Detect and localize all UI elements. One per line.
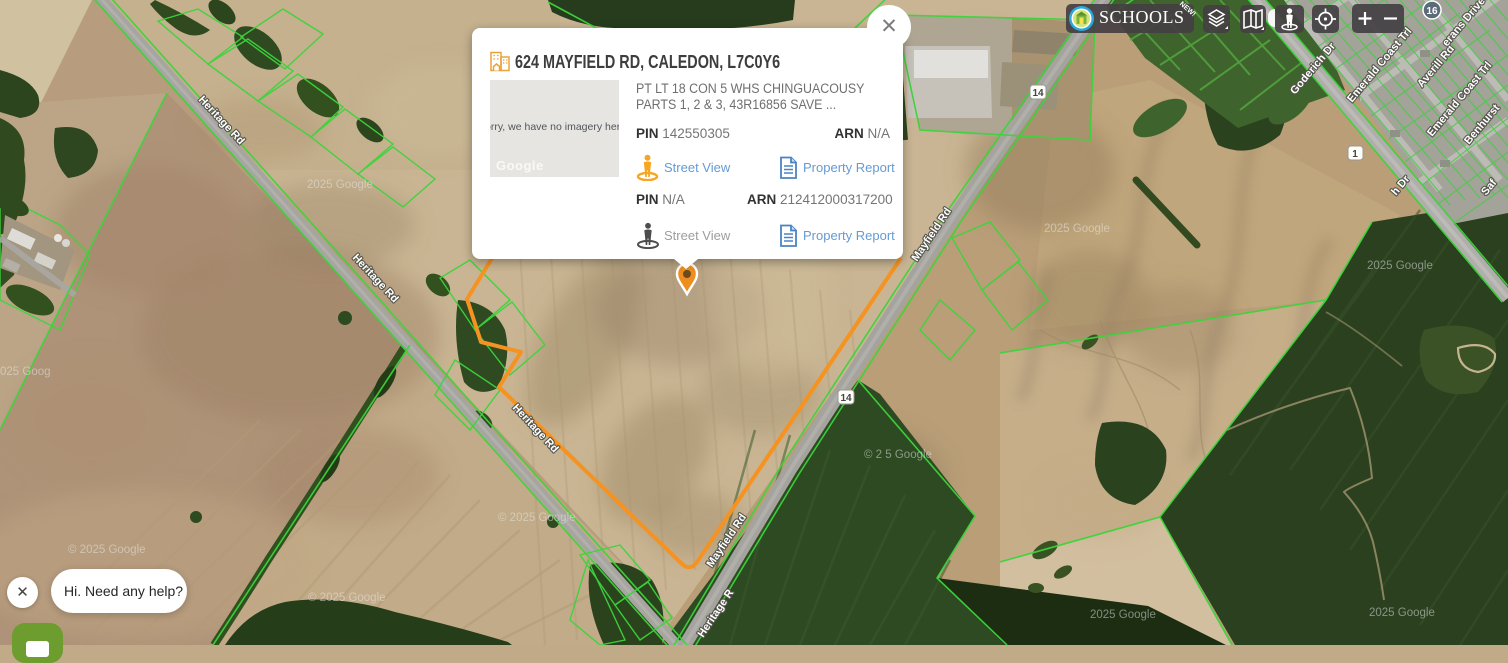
svg-text:2025 Google: 2025 Google: [307, 179, 373, 191]
svg-text:© 2025 Google: © 2025 Google: [498, 512, 576, 524]
svg-text:© 2025 Google: © 2025 Google: [68, 544, 146, 556]
svg-text:14: 14: [840, 393, 852, 404]
svg-text:2025 Google: 2025 Google: [1367, 260, 1433, 272]
svg-text:1: 1: [1352, 149, 1358, 160]
svg-text:16: 16: [1426, 6, 1438, 17]
svg-text:2025 Google: 2025 Google: [1090, 609, 1156, 621]
svg-text:025 Goog: 025 Goog: [0, 366, 51, 378]
svg-text:2025 Google: 2025 Google: [1044, 223, 1110, 235]
svg-text:© 2025 Google: © 2025 Google: [308, 592, 386, 604]
svg-text:© 2 5 Google: © 2 5 Google: [864, 449, 932, 461]
svg-text:14: 14: [1032, 88, 1044, 99]
svg-text:2025 Google: 2025 Google: [1369, 607, 1435, 619]
